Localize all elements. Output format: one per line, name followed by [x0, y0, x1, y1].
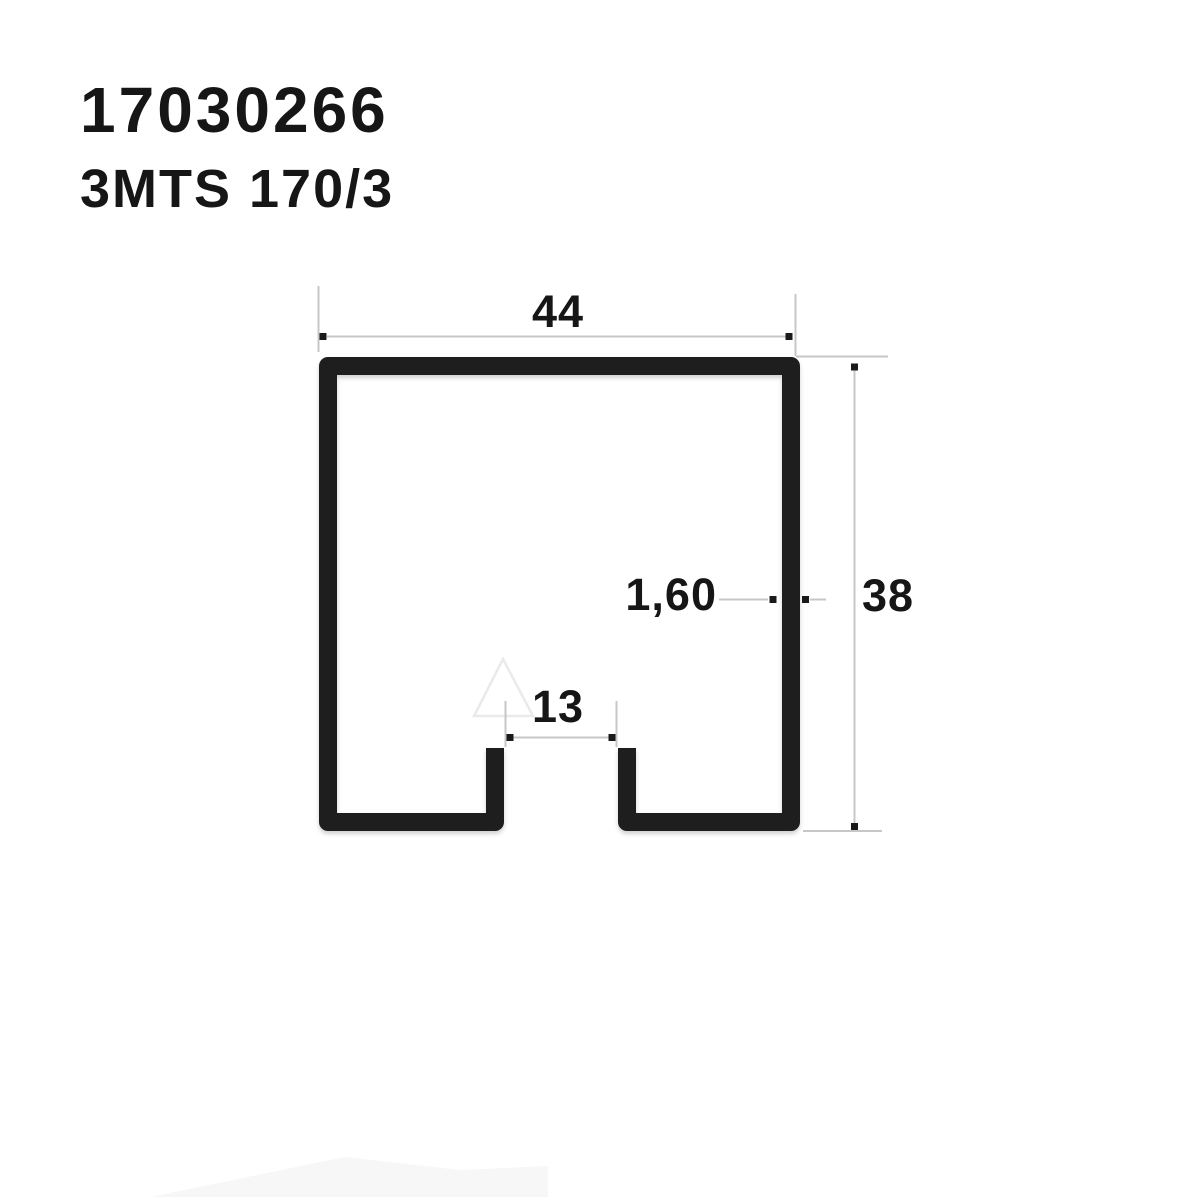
dim-height-value: 38: [862, 573, 914, 618]
dim-thickness-arrow-right: [802, 596, 809, 603]
dim-thickness-value: 1,60: [625, 572, 717, 617]
dim-slot-value: 13: [532, 684, 584, 729]
dim-slot-arrow-right: [609, 734, 616, 741]
dim-width-arrow-right: [786, 333, 793, 340]
watermark-bottom-shape: [150, 1157, 548, 1197]
watermark-triangle-icon: [474, 659, 533, 716]
dim-thickness-arrow-left: [770, 596, 777, 603]
dim-thickness: [719, 596, 826, 603]
dim-width-value: 44: [532, 289, 584, 334]
drawing-canvas: 17030266 3MTS 170/3: [0, 0, 1200, 1200]
dim-width-arrow-left: [320, 333, 327, 340]
dim-slot-arrow-left: [507, 734, 514, 741]
dim-height-arrow-bottom: [851, 823, 858, 830]
dim-height-arrow-top: [851, 364, 858, 371]
profile-drawing: [0, 0, 1200, 1200]
profile-outline: [328, 366, 791, 822]
